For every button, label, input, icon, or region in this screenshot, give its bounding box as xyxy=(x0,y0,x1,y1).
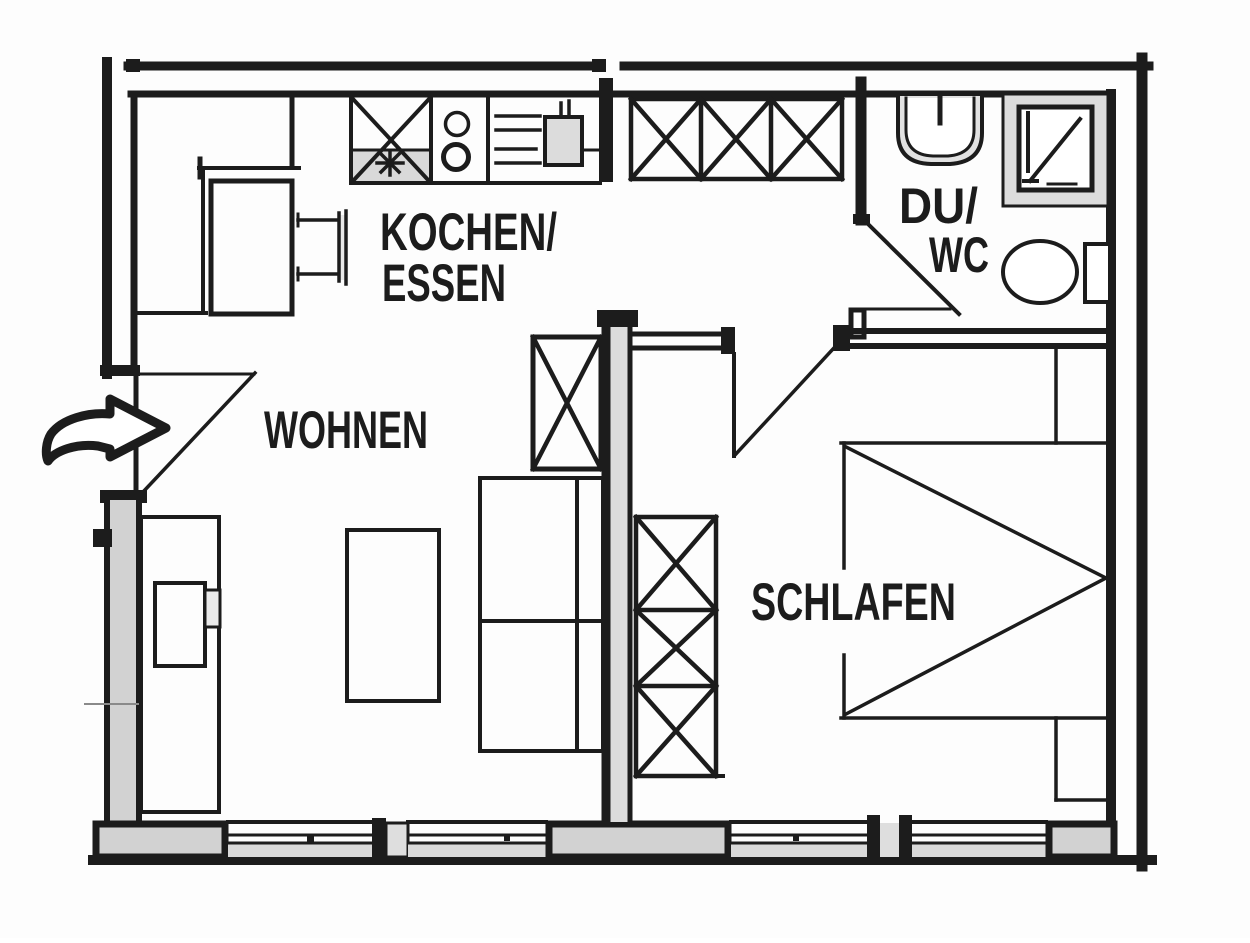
svg-text:DU/: DU/ xyxy=(899,178,978,234)
svg-text:WOHNEN: WOHNEN xyxy=(264,401,428,460)
svg-text:WC: WC xyxy=(929,227,989,283)
svg-text:SCHLAFEN: SCHLAFEN xyxy=(751,573,956,632)
svg-text:ESSEN: ESSEN xyxy=(382,254,506,313)
